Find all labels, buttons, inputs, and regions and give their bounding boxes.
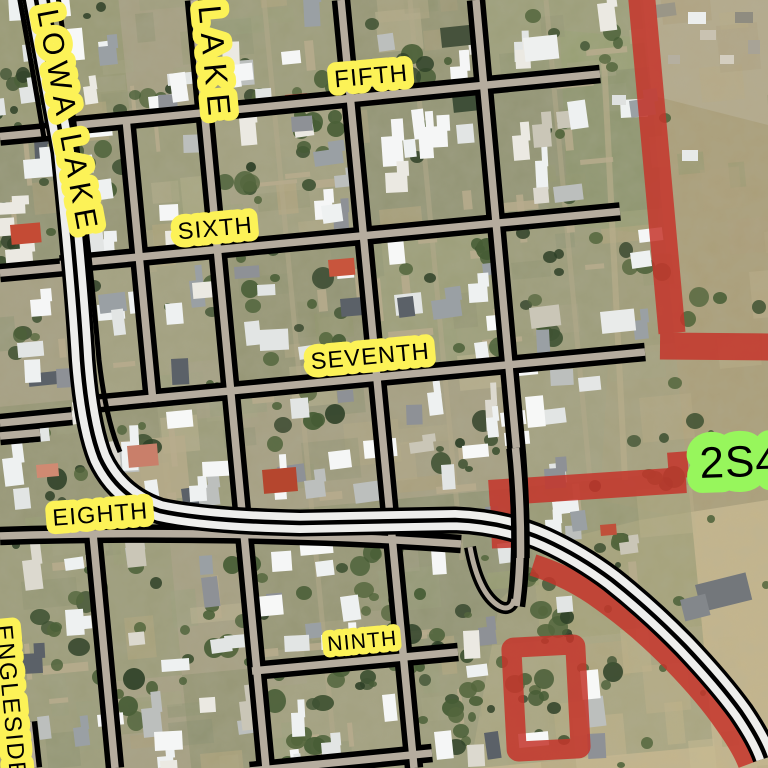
- svg-text:2S45: 2S45: [699, 435, 768, 488]
